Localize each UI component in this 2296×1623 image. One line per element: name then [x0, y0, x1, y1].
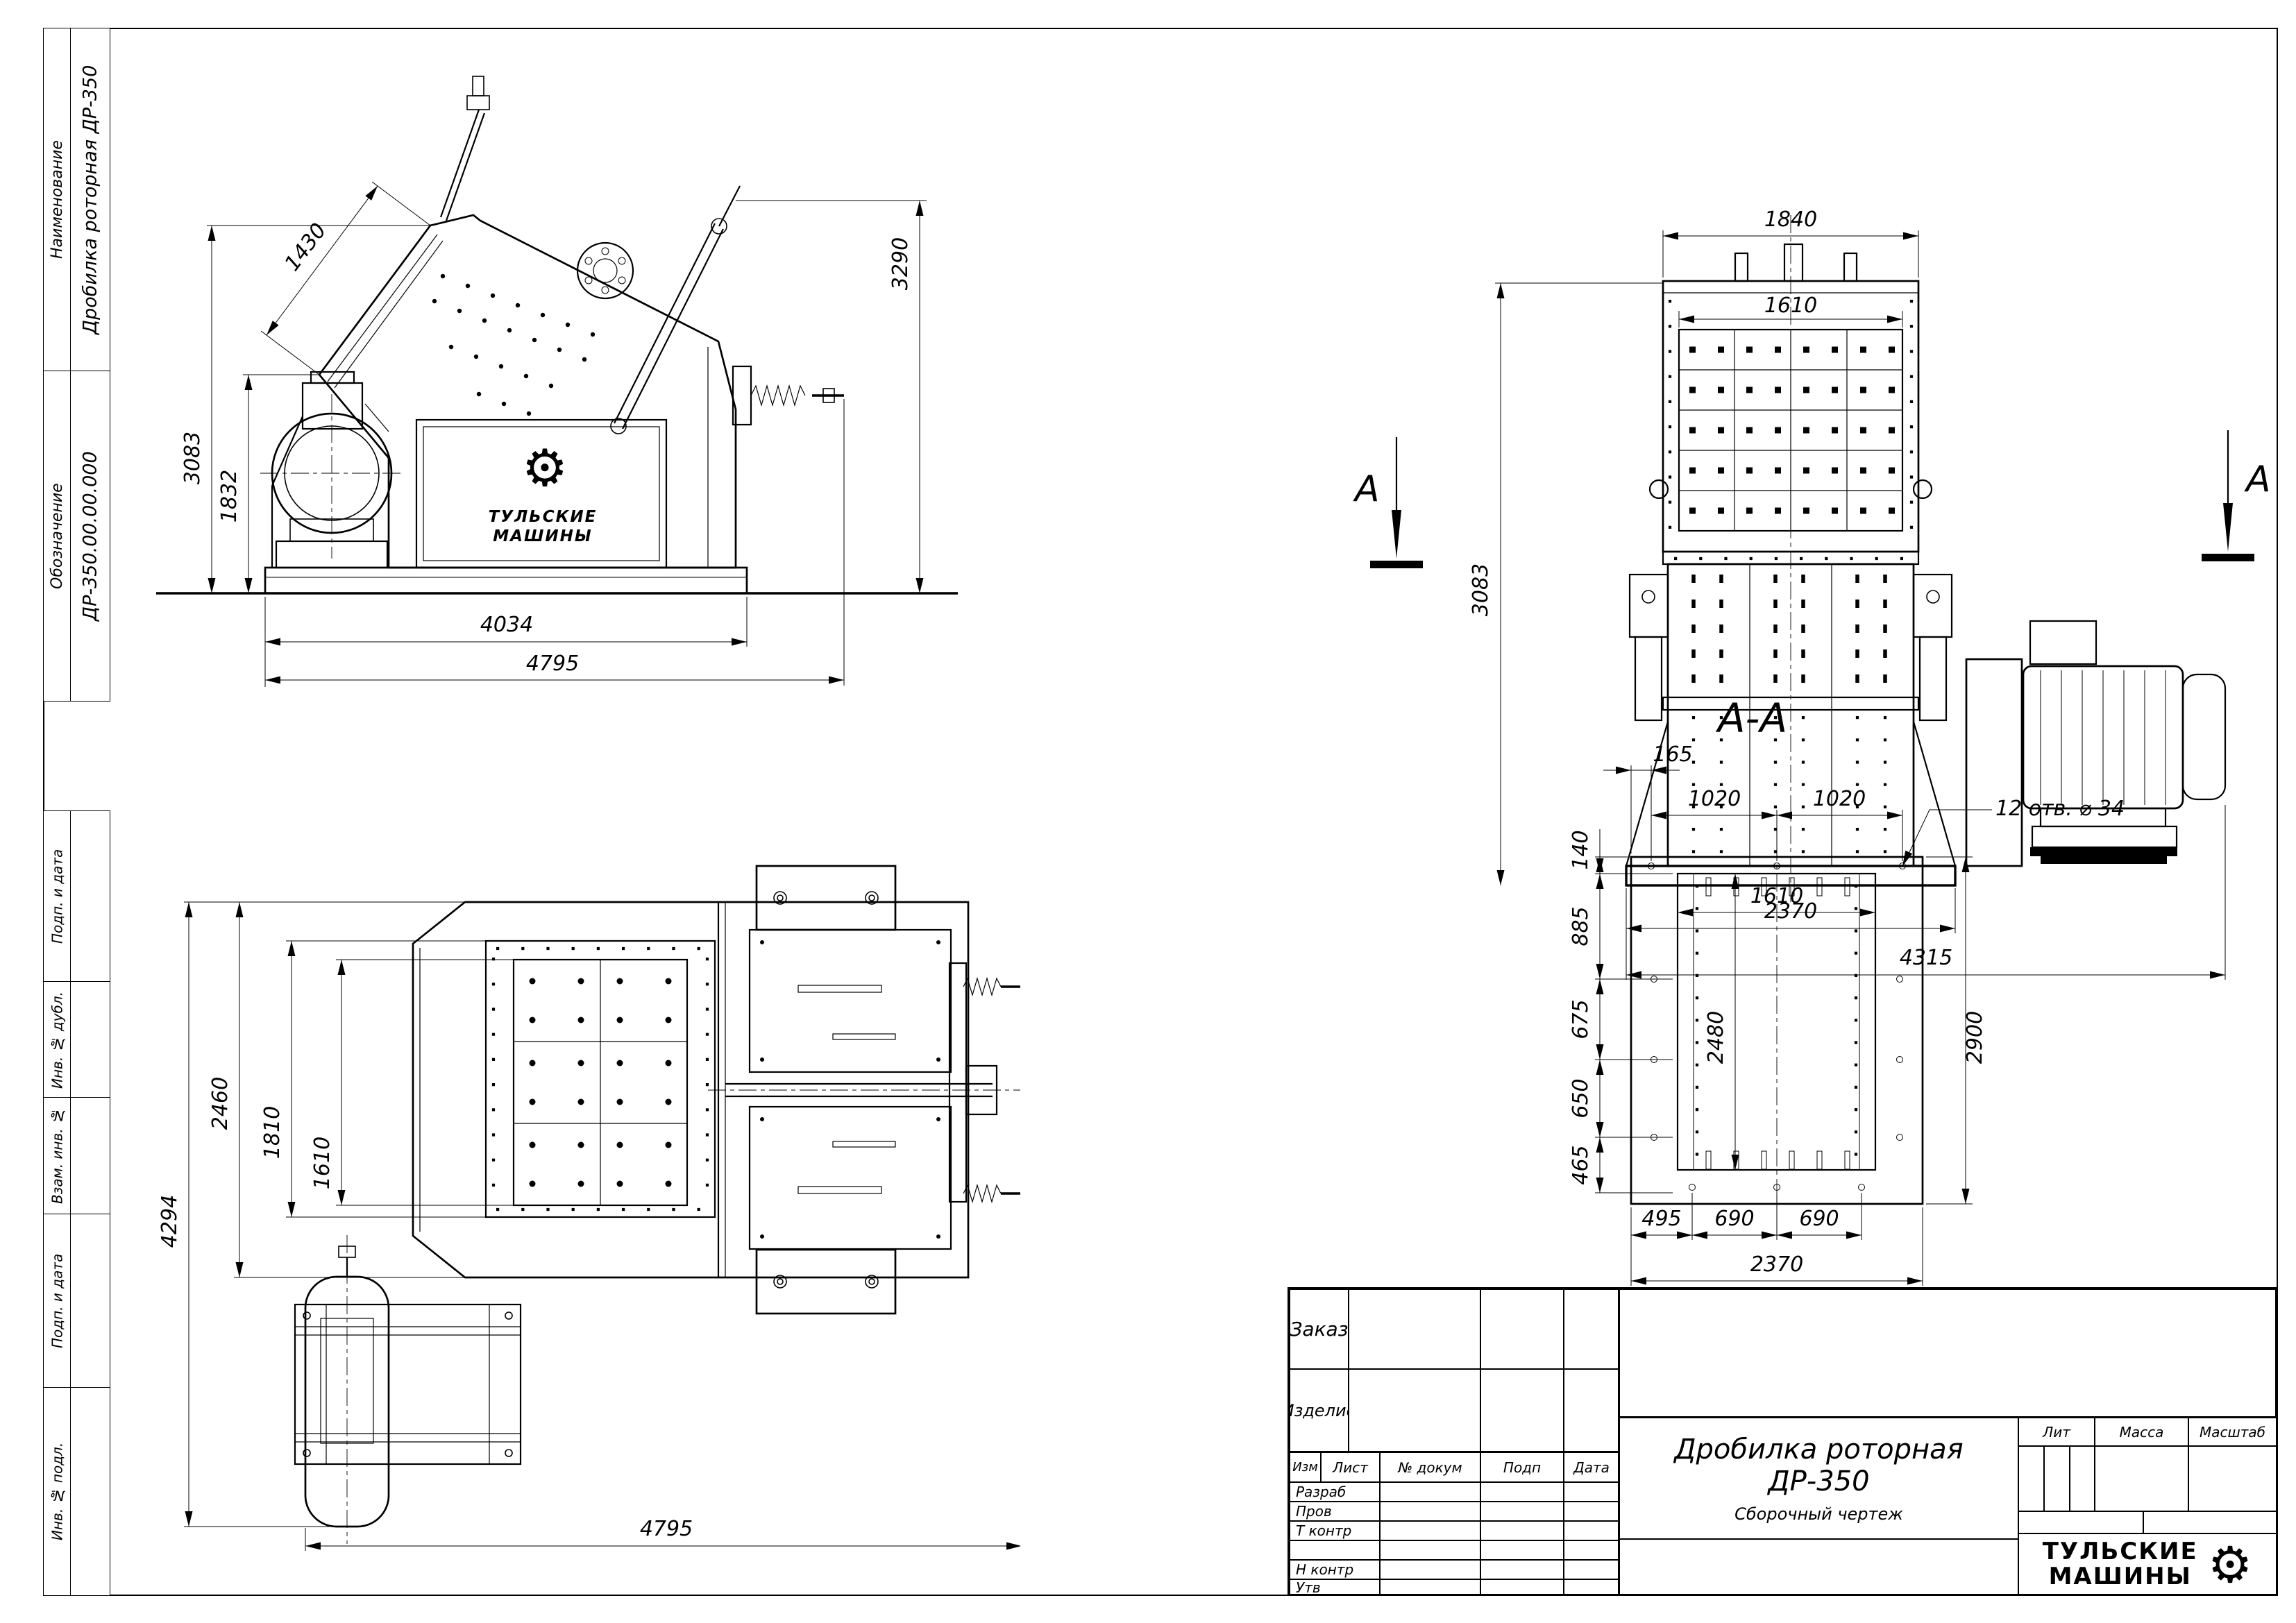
- tb-scale-value: [2188, 1446, 2277, 1511]
- tb-title-cell: Дробилка роторная ДР-350 Сборочный черте…: [1619, 1418, 2018, 1539]
- dim-4294: 4294: [158, 1195, 182, 1248]
- section-letter-right: А: [2244, 459, 2271, 500]
- tb-row-prov: Пров: [1290, 1502, 1380, 1521]
- section-view: А-А 165 1020 1020 12 отв. ⌀ 34: [1444, 649, 2277, 1291]
- tb-row-empty: [1290, 1540, 1380, 1560]
- section-letter-left: А: [1353, 468, 1380, 510]
- company-logo: ТУЛЬСКИЕ МАШИНЫ ⚙: [2018, 1533, 2277, 1596]
- dim-165: 165: [1653, 742, 1692, 767]
- left-panel-label: Обозначение: [43, 371, 71, 702]
- dim-1020b: 1020: [1813, 787, 1866, 811]
- dim-1430: 1430: [280, 219, 331, 275]
- left-panel-label: Наименование: [43, 28, 71, 372]
- side-view: ⚙ ТУЛЬСКИЕ МАШИНЫ 1430 3083 1832 3290 40…: [90, 42, 1013, 701]
- dim-1810: 1810: [260, 1106, 285, 1159]
- tb-lit-label: Лит: [2018, 1418, 2095, 1446]
- tb-col-izm: Изм: [1290, 1452, 1321, 1482]
- tb-mass-value: [2095, 1446, 2188, 1511]
- left-panel-stamp: Инв. № дубл.: [43, 981, 71, 1098]
- tb-row-tkontr: Т контр: [1290, 1521, 1380, 1540]
- tb-row-razrab: Разраб: [1290, 1482, 1380, 1502]
- section-title: А-А: [1715, 695, 1787, 742]
- tb-order-cell: [1564, 1289, 1619, 1369]
- holes-callout: 12 отв. ⌀ 34: [1995, 797, 2125, 821]
- left-panel-stamp: Инв. № подл.: [43, 1387, 71, 1596]
- dim-2460: 2460: [208, 1077, 233, 1130]
- side-view-machine: ⚙ ТУЛЬСКИЕ МАШИНЫ: [156, 76, 958, 593]
- dim-690a: 690: [1714, 1207, 1754, 1231]
- tb-docnumber-cell: [1619, 1289, 2276, 1418]
- dim-4034: 4034: [480, 613, 533, 637]
- doc-subtitle: Сборочный чертеж: [1734, 1504, 1903, 1524]
- title-block: Заказ Изделие Изм Лист № докум Подп Дата…: [1288, 1287, 2278, 1596]
- tb-row-utv: Утв: [1290, 1579, 1380, 1596]
- tb-product-cell: [1480, 1369, 1564, 1452]
- tb-order-label: Заказ: [1290, 1289, 1349, 1369]
- dim-690b: 690: [1799, 1207, 1839, 1231]
- dim-2480: 2480: [1704, 1011, 1728, 1064]
- dim-1020a: 1020: [1688, 787, 1741, 811]
- plan-view-dimensions: 4294 2460 1810 1610 4795: [158, 902, 1020, 1551]
- gear-icon: ⚙: [2208, 1536, 2253, 1594]
- tb-scale-label: Масштаб: [2188, 1418, 2277, 1446]
- svg-text:МАШИНЫ: МАШИНЫ: [493, 527, 592, 545]
- dim-2900: 2900: [1963, 1011, 1987, 1064]
- dim-3290: 3290: [888, 237, 913, 290]
- tb-product-label: Изделие: [1290, 1369, 1349, 1452]
- tb-row-nkontr: Н контр: [1290, 1560, 1380, 1579]
- tb-col-podp: Подп: [1480, 1452, 1564, 1482]
- tb-order-cell: [1480, 1289, 1564, 1369]
- plan-view: 4294 2460 1810 1610 4795: [97, 860, 1020, 1561]
- dim-495: 495: [1641, 1207, 1681, 1231]
- dim-465: 465: [1569, 1145, 1593, 1184]
- tb-product-cell: [1564, 1369, 1619, 1452]
- left-panel-stamp: Взам. инв. №: [43, 1097, 71, 1215]
- dim-1840: 1840: [1764, 207, 1817, 232]
- drawing-sheet: { "icons": { "gear": "⚙" }, "left_panel"…: [0, 0, 2296, 1623]
- tb-col-docnum: № докум: [1380, 1452, 1480, 1482]
- dim-2370-sec: 2370: [1750, 1252, 1803, 1277]
- tb-col-list: Лист: [1321, 1452, 1380, 1482]
- dim-885: 885: [1569, 906, 1593, 946]
- dim-4795: 4795: [526, 652, 579, 676]
- dim-1610-sec: 1610: [1750, 884, 1803, 908]
- dim-4795-plan: 4795: [640, 1517, 693, 1541]
- rivet-dots: [432, 274, 595, 416]
- left-panel-stamp: Подп. и дата: [43, 810, 71, 983]
- dim-1610: 1610: [1764, 294, 1817, 318]
- dim-140: 140: [1569, 830, 1593, 869]
- tb-mass-label: Масса: [2095, 1418, 2188, 1446]
- tb-col-data: Дата: [1564, 1452, 1619, 1482]
- section-cut-marks: А А: [1353, 430, 2271, 568]
- machine-logo: ⚙ ТУЛЬСКИЕ МАШИНЫ: [489, 439, 598, 545]
- svg-text:ТУЛЬСКИЕ: ТУЛЬСКИЕ: [489, 508, 598, 526]
- tb-order-value: [1349, 1289, 1480, 1369]
- dim-3083: 3083: [180, 432, 205, 484]
- dim-1610-plan: 1610: [310, 1137, 335, 1189]
- dim-675: 675: [1569, 999, 1593, 1039]
- tb-product-value: [1349, 1369, 1480, 1452]
- gear-icon: ⚙: [522, 439, 568, 498]
- dim-650: 650: [1569, 1078, 1593, 1118]
- doc-title: Дробилка роторная ДР-350: [1620, 1434, 2018, 1497]
- dim-3083-front: 3083: [1469, 563, 1493, 616]
- dim-1832: 1832: [217, 470, 242, 522]
- left-panel-stamp: Подп. и дата: [43, 1214, 71, 1388]
